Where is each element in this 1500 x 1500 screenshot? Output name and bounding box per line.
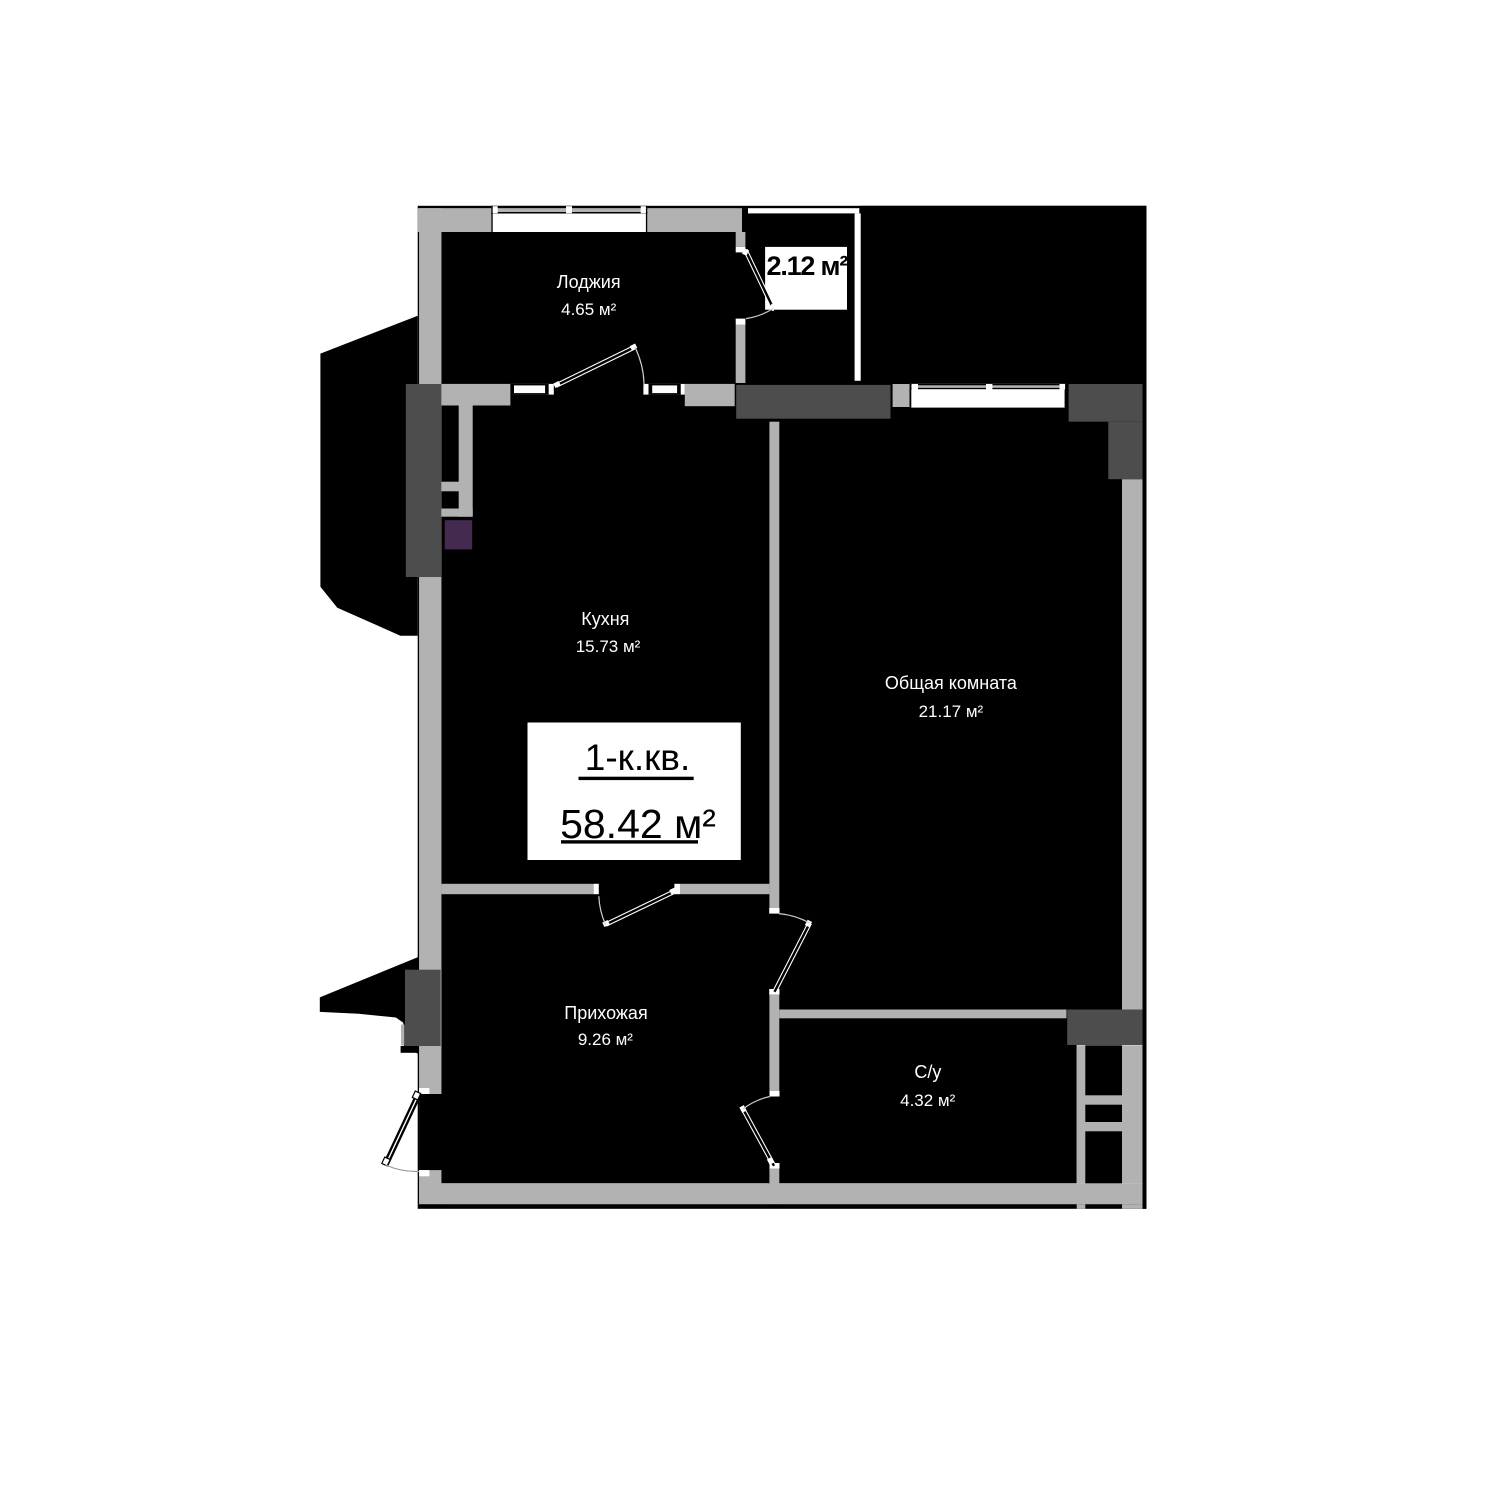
svg-text:9.26 м²: 9.26 м² (578, 1030, 633, 1049)
svg-text:15.73 м²: 15.73 м² (576, 637, 641, 656)
svg-text:2.12 м²: 2.12 м² (767, 251, 849, 281)
svg-text:Лоджия: Лоджия (557, 272, 621, 292)
svg-text:1-к.кв.: 1-к.кв. (585, 737, 691, 778)
svg-text:Прихожая: Прихожая (564, 1003, 647, 1023)
svg-text:21.17 м²: 21.17 м² (919, 702, 984, 721)
svg-text:С/у: С/у (914, 1062, 941, 1082)
svg-text:58.42 м²: 58.42 м² (560, 801, 716, 847)
svg-text:4.32 м²: 4.32 м² (900, 1091, 955, 1110)
svg-text:Общая комната: Общая комната (885, 673, 1018, 693)
svg-text:4.65 м²: 4.65 м² (561, 300, 616, 319)
svg-text:Кухня: Кухня (581, 609, 629, 629)
